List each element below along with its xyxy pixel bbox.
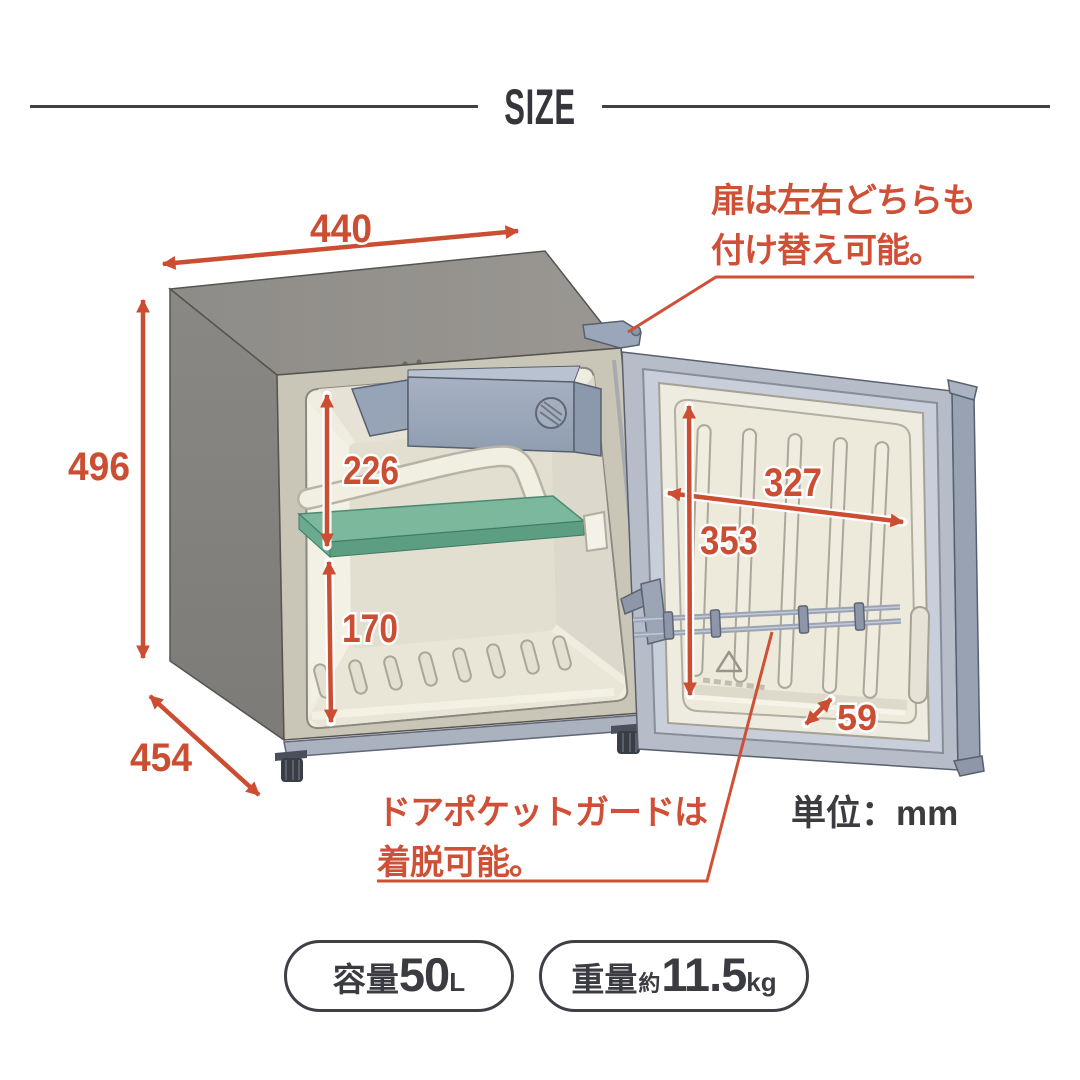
weight-label: 重量 [571,953,637,1001]
arrow-door-height [689,406,690,695]
callout-door-reversible [628,277,974,332]
capacity-badge: 容量 50 L [284,940,514,1012]
note-pocket-guard-line1: ドアポケットガードは [377,788,707,838]
size-infographic: SIZE [0,0,1080,1080]
dim-interior-lower: 170 [342,607,398,651]
note-pocket-guard: ドアポケットガードは 着脱可能。 [377,788,707,889]
dim-top-width: 440 [310,207,372,251]
note-door-reversible: 扉は左右どちらも 付け替え可能。 [711,176,975,277]
dim-pocket-depth: 59 [837,697,877,738]
cabinet-foot-left [275,750,307,782]
note-door-reversible-line2: 付け替え可能。 [711,226,975,276]
weight-approx: 約 [637,966,661,998]
dim-body-depth: 454 [130,736,193,780]
weight-value: 11.5 [661,947,746,1002]
thermostat-dial [536,398,566,428]
weight-unit: kg [746,967,776,998]
fridge-diagram: 440 496 454 226 170 327 353 59 [0,0,1080,1080]
dim-interior-upper: 226 [343,449,399,493]
shelf-bracket [584,512,607,551]
capacity-unit: L [449,967,465,998]
weight-badge: 重量 約 11.5 kg [539,940,809,1012]
arrow-interior-lower [329,562,331,722]
dim-door-width: 327 [764,461,822,505]
fridge-door [621,352,984,776]
unit-label: 単位：mm [791,785,958,836]
cabinet-interior [299,366,627,728]
note-pocket-guard-line2: 着脱可能。 [377,838,707,888]
fridge-cabinet [170,251,655,782]
capacity-label: 容量 [333,953,399,1001]
note-door-reversible-line1: 扉は左右どちらも [711,176,975,226]
capacity-value: 50 [399,947,449,1002]
spec-badges: 容量 50 L 重量 約 11.5 kg [0,940,1080,1012]
dim-body-height: 496 [68,445,130,489]
door-handle-recess [909,607,930,703]
dim-door-height: 353 [700,519,758,563]
